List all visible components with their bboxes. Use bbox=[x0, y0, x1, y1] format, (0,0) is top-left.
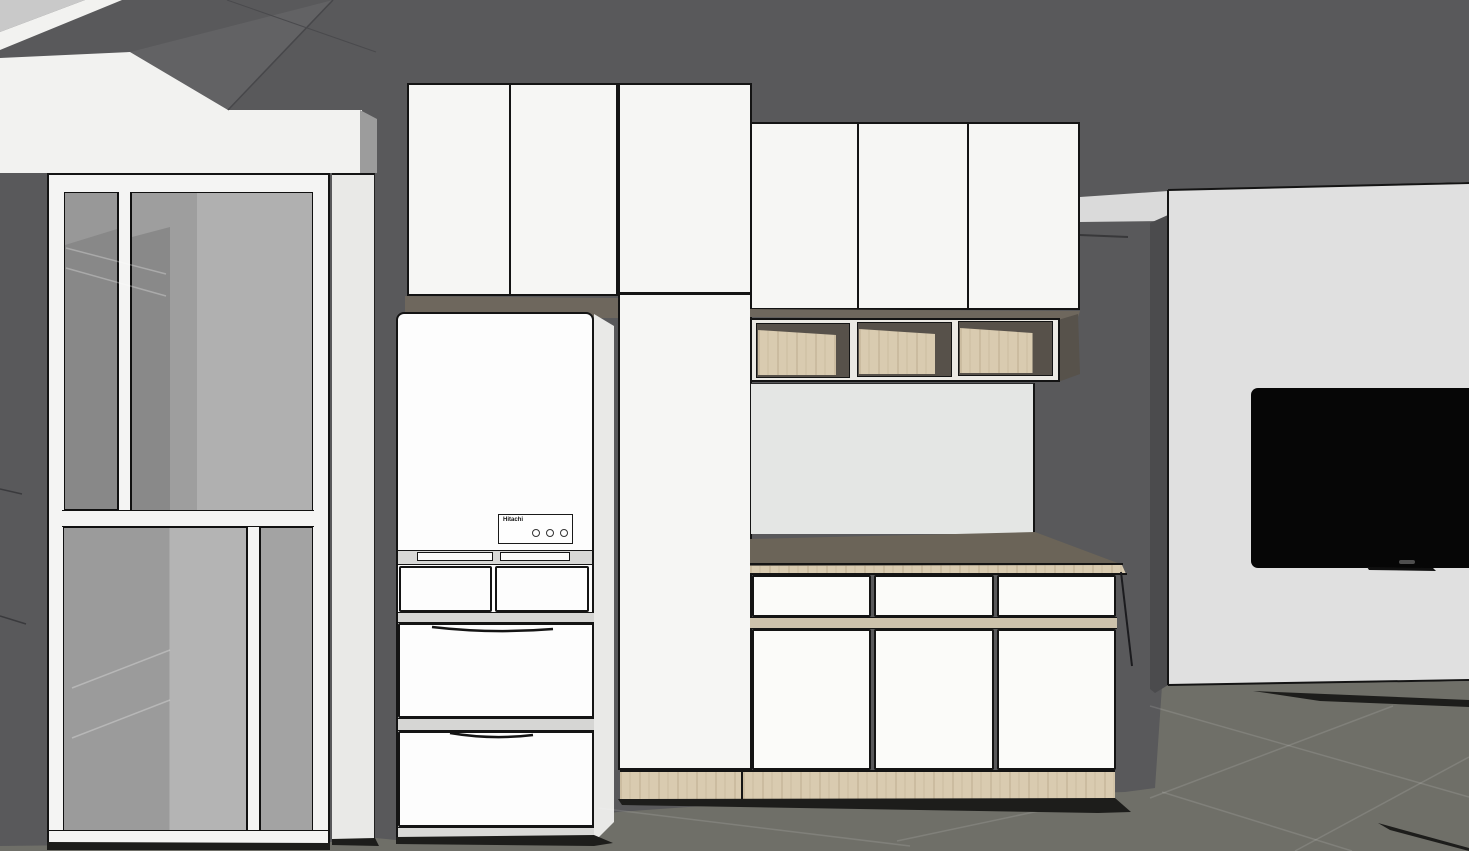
tv-panel-bottom-edge bbox=[1168, 680, 1469, 685]
glass-reflection-lines bbox=[66, 248, 170, 738]
tv-panel-top-edge bbox=[1168, 183, 1469, 190]
fridge-handle-curve-2 bbox=[450, 733, 533, 737]
fridge-handle-curve-1 bbox=[432, 627, 553, 631]
floor-grout-lines bbox=[598, 706, 1469, 851]
counter-side-edge-line bbox=[1121, 572, 1132, 666]
edge-lines-overlay bbox=[0, 0, 1469, 851]
soffit-band-shadow-line bbox=[1080, 235, 1128, 237]
tv-bottom-shadow bbox=[1367, 567, 1436, 571]
ceiling-fold-line-2 bbox=[227, 0, 376, 52]
kitchen-3d-render: Hitachi bbox=[0, 0, 1469, 851]
left-wall-corner-lines bbox=[0, 489, 26, 624]
ceiling-fold-line-1 bbox=[228, 0, 333, 110]
